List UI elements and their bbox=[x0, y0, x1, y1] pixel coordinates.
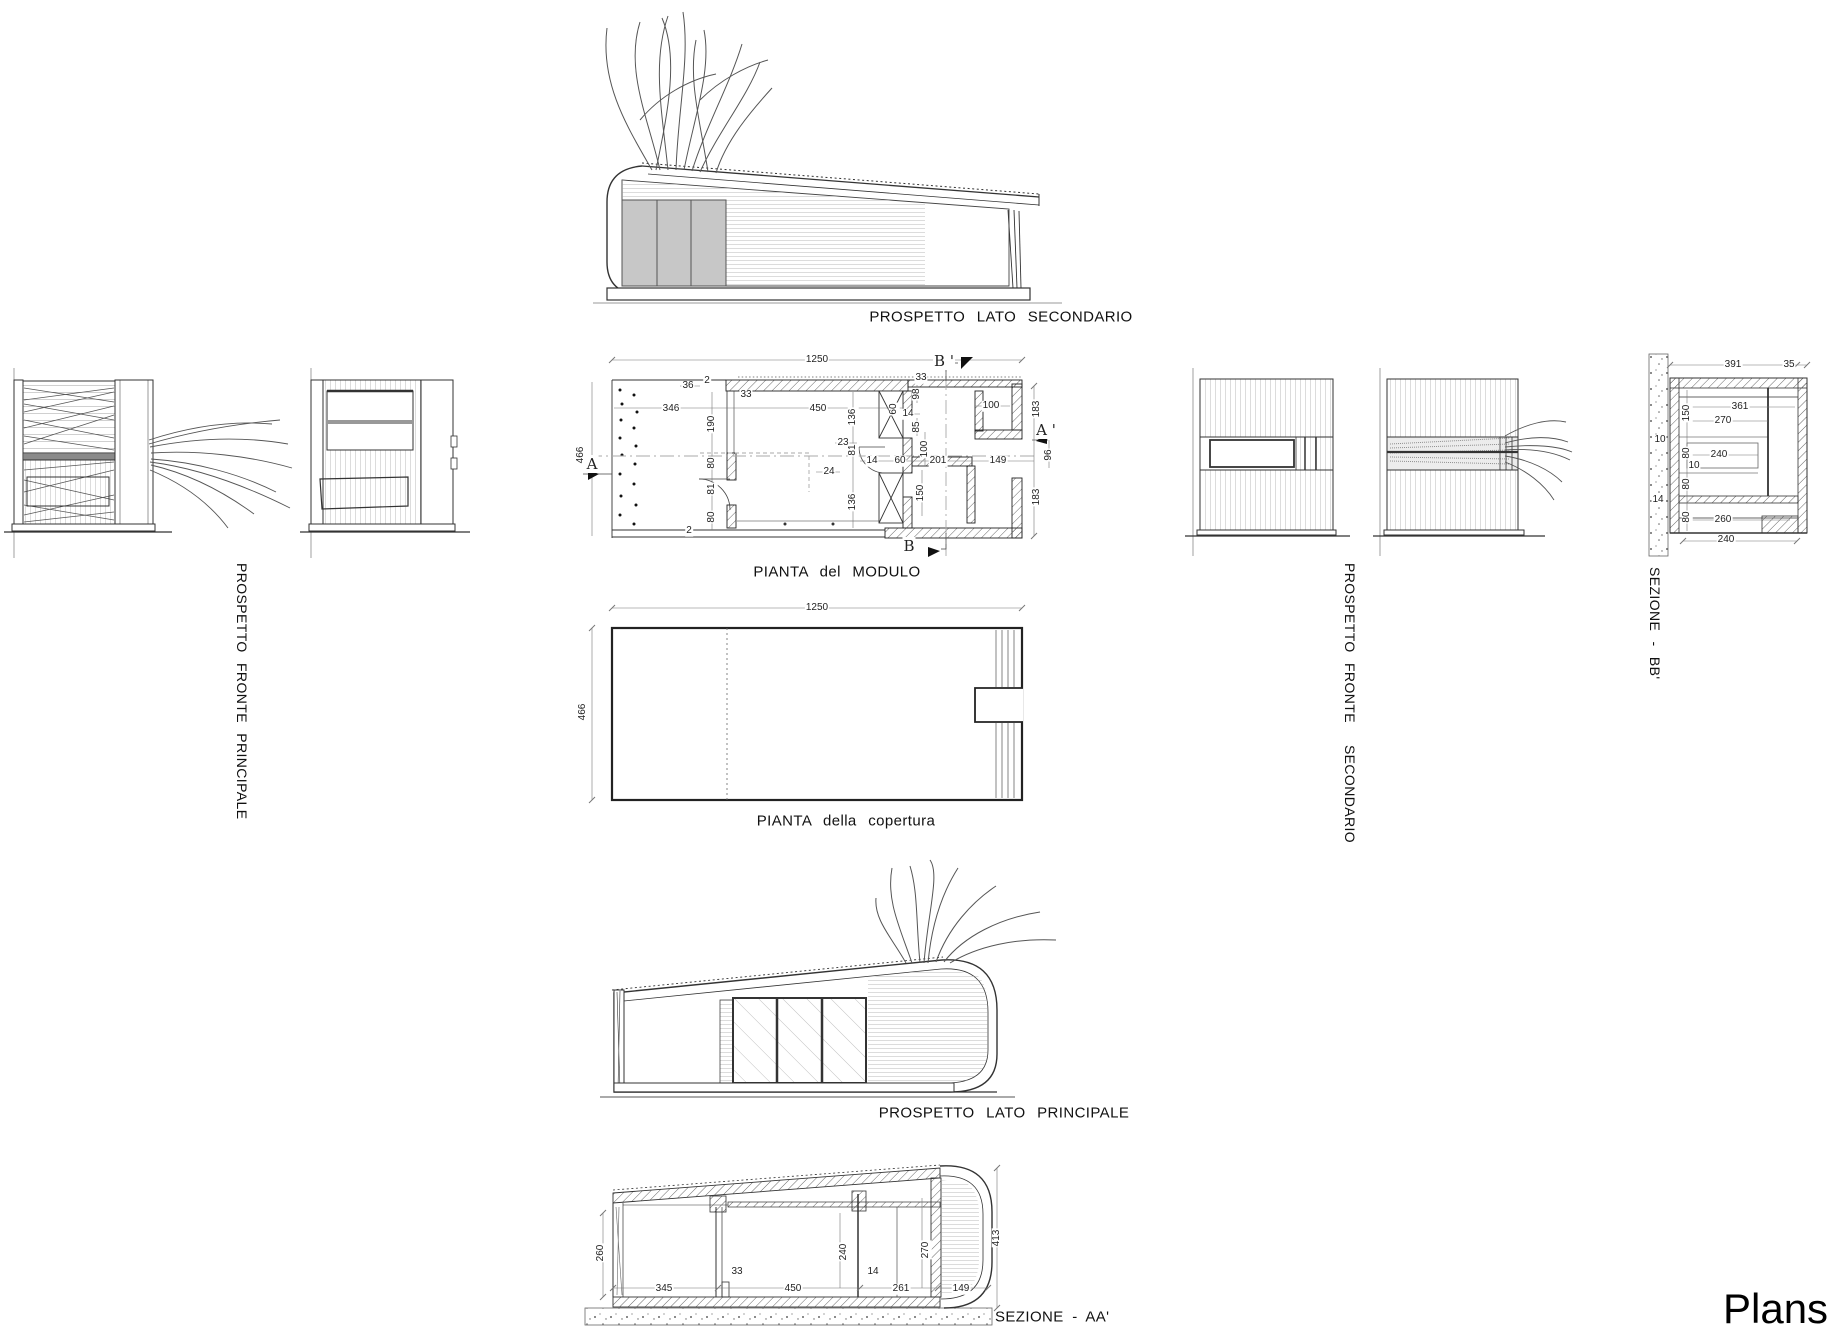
dim-text: 270 bbox=[1714, 416, 1733, 427]
window bbox=[1210, 440, 1294, 467]
shaded-panel bbox=[622, 200, 726, 286]
dim-text: 240 bbox=[1710, 450, 1729, 461]
dim-text: 345 bbox=[655, 1284, 674, 1295]
elevation-main-side bbox=[600, 860, 1056, 1097]
label-front-secondario: PROSPETTO FRONTESECONDARIO bbox=[1342, 563, 1358, 843]
dim-text: 98 bbox=[912, 387, 923, 400]
dim-text: 149 bbox=[952, 1284, 971, 1295]
grass-side bbox=[149, 420, 292, 528]
slats-area bbox=[868, 969, 988, 1083]
label-floor-plan: PIANTA del MODULO bbox=[753, 564, 920, 581]
glazed-wall bbox=[733, 998, 866, 1083]
dim-text: 1250 bbox=[805, 355, 829, 366]
dim-text: 80 bbox=[1682, 477, 1693, 490]
dim-text: 190 bbox=[707, 415, 718, 434]
dim-text: 150 bbox=[1682, 404, 1693, 423]
dim-text: 240 bbox=[839, 1243, 850, 1262]
label-front-secondario-line2: SECONDARIO bbox=[1342, 745, 1358, 843]
section-aa bbox=[585, 1165, 1000, 1325]
dim-text: 81 bbox=[848, 443, 859, 456]
deck-posts-dots bbox=[619, 389, 639, 526]
dim-text: 136 bbox=[848, 408, 859, 427]
dim-text: 85 bbox=[912, 420, 923, 433]
dim-text: 270 bbox=[921, 1241, 932, 1260]
dim-text: 10 bbox=[1653, 435, 1666, 446]
label-front-secondario-line1: PROSPETTO FRONTE bbox=[1342, 563, 1358, 723]
dim-text: 36 bbox=[681, 381, 694, 392]
dim-text: 346 bbox=[662, 404, 681, 415]
dim-text: 150 bbox=[916, 484, 927, 503]
marker-a: A bbox=[586, 455, 599, 473]
elevation-secondary-side bbox=[593, 12, 1062, 303]
label-elevation-main: PROSPETTO LATO PRINCIPALE bbox=[879, 1105, 1129, 1122]
elevation-front-secondario-a bbox=[1185, 368, 1350, 556]
dim-text: 24 bbox=[822, 467, 835, 478]
dim-text: 201 bbox=[929, 456, 948, 467]
dim-text: 149 bbox=[989, 456, 1008, 467]
dim-text: 361 bbox=[1731, 402, 1750, 413]
dim-text: 60 bbox=[893, 456, 906, 467]
elevation-front-secondario-b bbox=[1373, 368, 1572, 556]
dim-text: 80 bbox=[1682, 510, 1693, 523]
dim-text: 240 bbox=[1717, 535, 1736, 546]
dim-text: 260 bbox=[1714, 515, 1733, 526]
dim-text: 183 bbox=[1032, 488, 1043, 507]
dim-text: 1250 bbox=[805, 603, 829, 614]
roof-notch bbox=[975, 688, 1023, 722]
dim-text: 2 bbox=[703, 376, 711, 387]
page-title: Plans bbox=[1723, 1285, 1828, 1333]
dim-text: 450 bbox=[784, 1284, 803, 1295]
elevation-front-principale-b bbox=[300, 368, 470, 558]
dim-text: 80 bbox=[707, 510, 718, 523]
dim-text: 466 bbox=[578, 703, 589, 722]
dim-text: 35 bbox=[1782, 360, 1795, 371]
dim-text: 2 bbox=[685, 526, 693, 537]
dim-text: 14 bbox=[901, 409, 914, 420]
drawing-sheet: PROSPETTO LATO SECONDARIO PIANTA del MOD… bbox=[0, 0, 1831, 1344]
label-section-aa: SEZIONE - AA' bbox=[995, 1309, 1109, 1326]
dim-text: 450 bbox=[809, 404, 828, 415]
slats-cap bbox=[941, 1180, 979, 1295]
dim-text: 260 bbox=[596, 1244, 607, 1263]
elevation-front-principale-a bbox=[4, 368, 292, 558]
dim-text: 136 bbox=[848, 493, 859, 512]
dim-text: 14 bbox=[865, 456, 878, 467]
label-roof-plan: PIANTA della copertura bbox=[757, 813, 935, 830]
dim-text: 100 bbox=[982, 401, 1001, 412]
foundation bbox=[585, 1308, 992, 1325]
dim-text: 96 bbox=[1044, 448, 1055, 461]
marker-a-prime: A ' bbox=[1035, 421, 1057, 439]
dim-text: 80 bbox=[707, 456, 718, 469]
dim-text: 261 bbox=[892, 1284, 911, 1295]
marker-b: B bbox=[902, 537, 915, 555]
dim-text: 183 bbox=[1032, 400, 1043, 419]
drawings-graphics bbox=[0, 0, 1831, 1344]
dim-text: 60 bbox=[889, 402, 900, 415]
concrete-strip bbox=[1649, 354, 1668, 556]
dim-text: 14 bbox=[866, 1267, 879, 1278]
label-front-principale: PROSPETTO FRONTE PRINCIPALE bbox=[234, 563, 250, 819]
dim-text: 466 bbox=[576, 446, 587, 465]
dim-text: 33 bbox=[730, 1267, 743, 1278]
dim-text: 80 bbox=[1682, 446, 1693, 459]
roof-plan bbox=[589, 605, 1025, 803]
dim-text: 14 bbox=[1651, 495, 1664, 506]
dim-text: 413 bbox=[992, 1229, 1003, 1248]
floor-plan bbox=[583, 352, 1049, 557]
section-bb bbox=[1649, 354, 1810, 556]
dim-text: 391 bbox=[1724, 360, 1743, 371]
label-section-bb: SEZIONE - BB' bbox=[1647, 567, 1663, 679]
grass-top bbox=[606, 12, 772, 173]
dim-text: 10 bbox=[1687, 461, 1700, 472]
label-elevation-secondary: PROSPETTO LATO SECONDARIO bbox=[869, 309, 1132, 326]
grass-top bbox=[876, 860, 1056, 963]
dim-text: 33 bbox=[914, 373, 927, 384]
dim-text: 33 bbox=[739, 390, 752, 401]
marker-b-prime: B ' bbox=[933, 352, 955, 370]
dim-text: 81 bbox=[707, 482, 718, 495]
